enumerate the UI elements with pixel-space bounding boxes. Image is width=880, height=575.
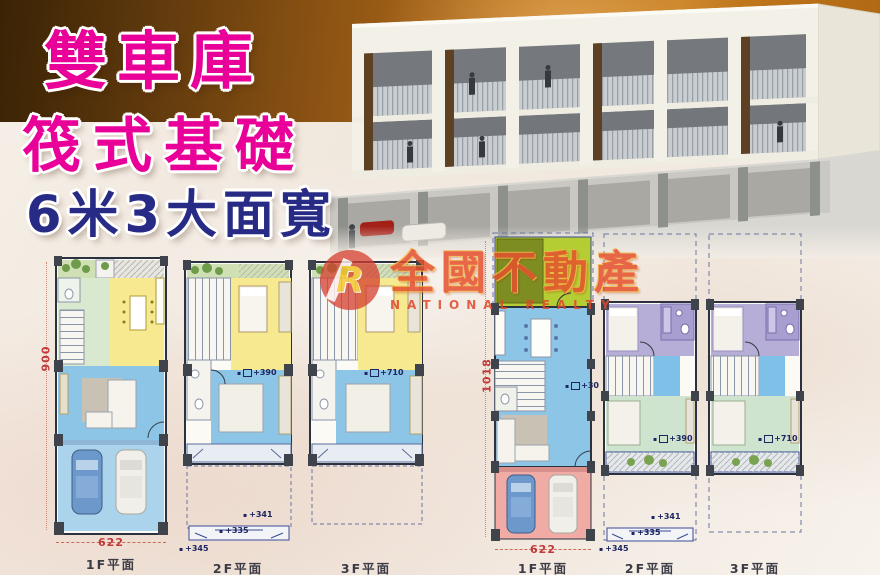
open-area-dashed xyxy=(312,466,422,524)
level-note: +710 xyxy=(758,434,798,443)
dim-900: 900 xyxy=(40,339,53,379)
open-area-dashed xyxy=(187,466,291,528)
sofa xyxy=(497,419,515,463)
dining-table xyxy=(130,296,146,330)
stair-landing xyxy=(759,356,785,396)
level-note: +390 xyxy=(653,434,693,443)
dining-table xyxy=(531,319,551,357)
headline-frontage: 6米3大面寬 xyxy=(26,190,337,241)
plan-label: 1F平面 xyxy=(491,558,595,575)
level-badge xyxy=(764,435,773,443)
level-badge xyxy=(243,369,252,377)
canopy-note-1: +341 xyxy=(651,512,681,521)
plan-label: 2F平面 xyxy=(181,558,295,575)
level-badge xyxy=(370,369,379,377)
canopy-note-1: +341 xyxy=(243,510,273,519)
ad-flyer: 雙車庫 筏式基礎 6米3大面寬 xyxy=(0,0,880,575)
canopy-note-2: +335 xyxy=(219,526,249,535)
white-car xyxy=(549,475,577,533)
level-badge xyxy=(659,435,668,443)
cabinet xyxy=(60,374,68,414)
watermark-brand: 全國不動產 xyxy=(390,250,645,295)
canopy-note-3: +345 xyxy=(179,544,209,553)
dim-622: 622 xyxy=(52,536,170,549)
plan-label: 1F平面 xyxy=(52,554,170,573)
watermark-brand-en: NATIONAL REALTY xyxy=(390,298,645,312)
bed xyxy=(346,384,390,432)
bed xyxy=(608,401,640,445)
canopy-note-3: +345 xyxy=(599,544,629,553)
dim-line-vertical xyxy=(46,262,47,530)
dim-622: 622 xyxy=(491,543,595,556)
building-side-wall xyxy=(818,4,880,159)
kitchen-counter xyxy=(495,311,505,355)
plan-right-3f: +710 3F平面 xyxy=(706,231,804,575)
plan-label: 2F平面 xyxy=(601,558,699,575)
plan-right-3f-drawing xyxy=(706,231,804,543)
logo-letter: R xyxy=(336,260,364,301)
plan-left-2f: +390 +341 +335 +345 2F平面 xyxy=(181,258,295,574)
canopy-note-2: +335 xyxy=(631,528,661,537)
wardrobe xyxy=(279,282,291,332)
level-badge xyxy=(571,382,580,390)
headline-raft-foundation: 筏式基礎 xyxy=(22,116,306,175)
stair-landing xyxy=(654,356,680,396)
bed xyxy=(219,384,263,432)
building-render xyxy=(330,0,880,258)
plan-left-1f: 900 622 1F平面 xyxy=(52,254,170,574)
plan-label: 3F平面 xyxy=(306,558,426,575)
headline-double-garage: 雙車庫 xyxy=(44,30,263,93)
balcony xyxy=(312,444,422,462)
level-note: +30 xyxy=(565,381,599,390)
realty-watermark: R 全國不動產 NATIONAL REALTY xyxy=(320,250,645,312)
plan-left-1f-drawing xyxy=(52,254,170,538)
blue-car xyxy=(507,475,535,533)
bed xyxy=(239,286,267,332)
plan-left-2f-drawing xyxy=(181,258,295,552)
staircase xyxy=(711,356,759,396)
level-note: +390 xyxy=(237,368,277,377)
plan-label: 3F平面 xyxy=(706,558,804,575)
level-note: +710 xyxy=(364,368,404,377)
bed xyxy=(713,401,745,445)
kitchen-counter xyxy=(156,278,164,324)
dim-1018: 1018 xyxy=(481,354,494,398)
blue-car xyxy=(72,450,102,514)
building-facade xyxy=(352,4,818,179)
realty-logo-icon: R xyxy=(320,250,380,310)
white-car xyxy=(116,450,146,514)
staircase xyxy=(606,356,654,396)
staircase xyxy=(60,310,84,364)
staircase xyxy=(187,278,231,360)
